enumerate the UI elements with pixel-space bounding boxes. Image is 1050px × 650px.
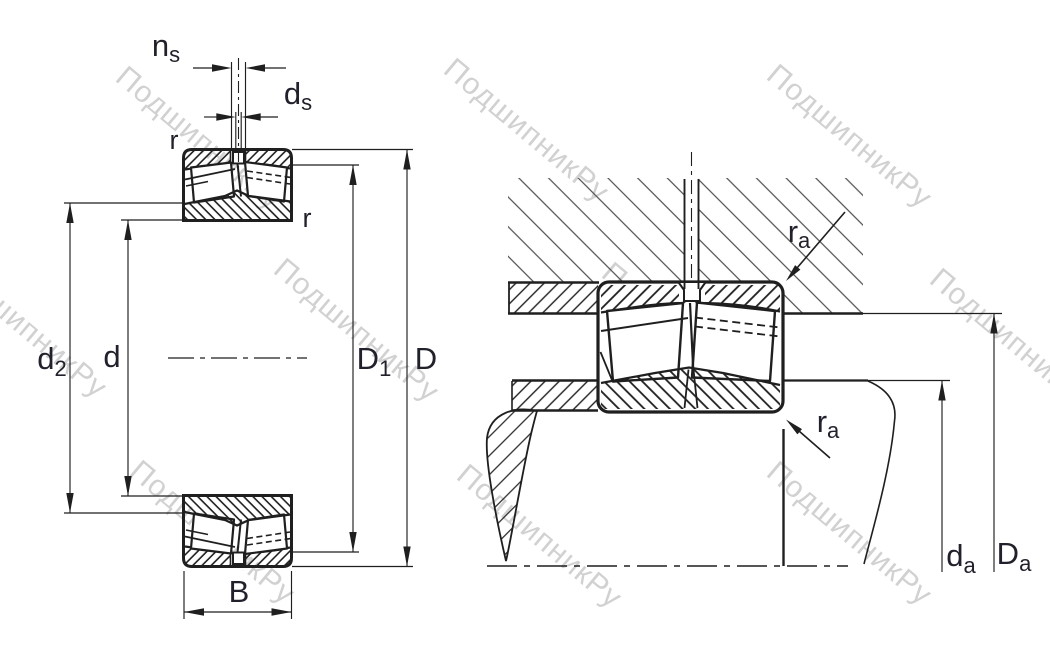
arrowhead [403,150,410,170]
arrowhead [403,547,410,567]
housing-hatch [508,178,685,282]
arrowhead [212,64,232,71]
groove-clear [679,283,705,302]
watermark-text: ПодшипникРу [268,252,446,409]
label-da: da [946,538,976,578]
watermark-layer: ПодшипникРу ПодшипникРу ПодшипникРу Подш… [0,52,1050,615]
groove-plug [233,553,244,565]
arrowhead [246,64,266,71]
annotation-ra-bottom: ra [786,404,840,458]
left-view: ns ds r r d2 d [37,28,437,619]
label-d: d [103,339,120,374]
arrowhead [349,165,356,185]
arrowhead [66,203,73,223]
arrowhead [124,220,131,240]
housing-hatch [699,178,864,282]
label-D: D [415,341,437,376]
right-view: ra ra da Da [487,152,1032,578]
technical-drawing: ПодшипникРу ПодшипникРу ПодшипникРу Подш… [0,0,1050,650]
arrowhead [66,493,73,513]
arrowhead [241,113,261,120]
shaft-shoulder-hatch [512,381,598,410]
arrowhead [938,381,945,401]
label-ds: ds [284,76,312,115]
locating-ring-hatch [509,283,598,313]
arrowhead [184,608,204,615]
housing-hatch [783,282,863,314]
arrowhead [216,113,236,120]
arrowhead [349,532,356,552]
label-ra-bottom: ra [817,404,840,443]
dim-ds: ds [204,76,312,121]
label-ns: ns [152,28,180,67]
locating-ring-section [508,283,598,314]
label-r-side: r [303,203,312,233]
label-B: B [229,574,250,609]
watermark-text: ПодшипникРу [761,455,939,612]
label-r-top: r [170,125,179,155]
watermark-text: ПодшипникРу [451,458,629,615]
watermark-text: ПодшипникРу [0,248,113,405]
dim-ns: ns [152,28,286,72]
label-Da: Da [997,536,1032,576]
arrowhead [124,476,131,496]
arrowhead [272,608,292,615]
right-bearing-section [598,282,783,412]
